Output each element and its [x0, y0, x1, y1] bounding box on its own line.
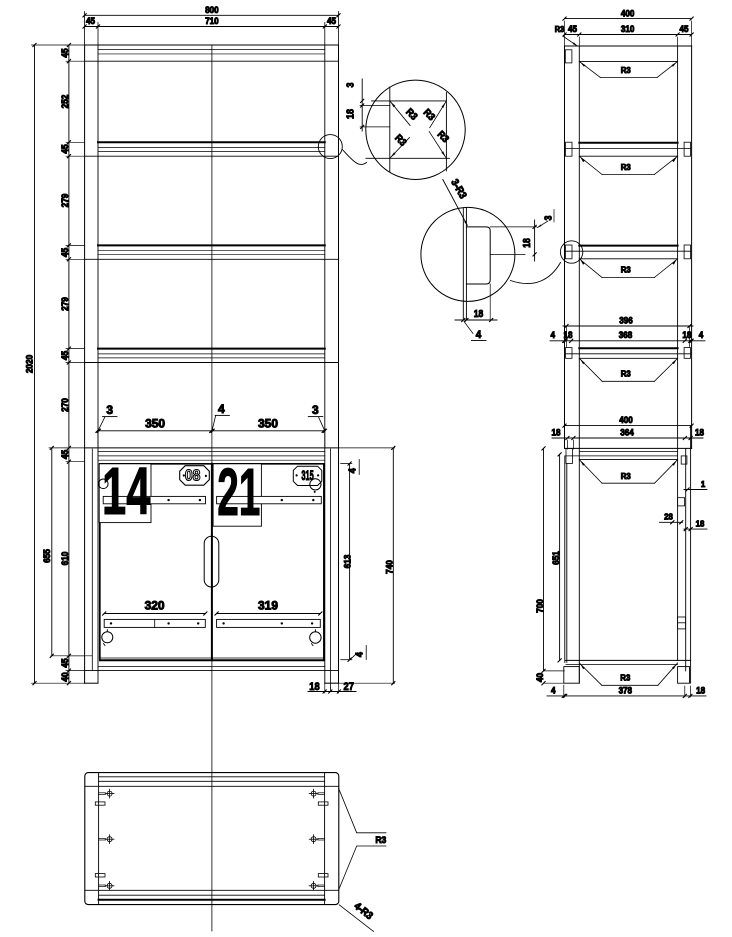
svg-text:45: 45 — [59, 248, 69, 257]
svg-text:40: 40 — [59, 672, 69, 681]
svg-text:350: 350 — [145, 416, 165, 430]
svg-text:45: 45 — [568, 24, 577, 34]
svg-text:R3: R3 — [621, 265, 631, 274]
svg-text:4-R3: 4-R3 — [352, 901, 376, 923]
svg-text:08: 08 — [185, 468, 201, 485]
svg-text:18: 18 — [696, 685, 705, 695]
svg-text:310: 310 — [621, 24, 635, 34]
svg-text:613: 613 — [342, 554, 352, 568]
svg-text:400: 400 — [619, 415, 633, 425]
svg-text:700: 700 — [535, 599, 545, 613]
svg-text:45: 45 — [680, 24, 689, 34]
svg-text:R3: R3 — [435, 129, 451, 145]
svg-text:800: 800 — [205, 5, 219, 15]
svg-text:3: 3 — [543, 215, 555, 220]
svg-text:45: 45 — [59, 48, 69, 57]
svg-text:3: 3 — [106, 403, 113, 417]
svg-text:279: 279 — [59, 297, 69, 311]
svg-text:14: 14 — [102, 454, 151, 529]
svg-text:45: 45 — [59, 658, 69, 667]
svg-text:18: 18 — [564, 330, 573, 340]
svg-text:45: 45 — [86, 16, 95, 26]
svg-text:18: 18 — [521, 238, 532, 247]
svg-text:4: 4 — [476, 330, 482, 342]
svg-text:R3: R3 — [620, 673, 630, 682]
svg-text:R3: R3 — [555, 25, 564, 34]
svg-text:21: 21 — [217, 454, 260, 530]
svg-text:R3: R3 — [375, 834, 386, 845]
svg-text:R3: R3 — [621, 163, 631, 172]
svg-text:R3: R3 — [621, 66, 631, 75]
svg-text:45: 45 — [59, 450, 69, 459]
svg-text:R3: R3 — [621, 369, 631, 378]
svg-text:4: 4 — [218, 402, 225, 416]
svg-text:45: 45 — [59, 351, 69, 360]
svg-text:3-R3: 3-R3 — [448, 177, 468, 201]
svg-text:368: 368 — [619, 330, 633, 340]
svg-text:4: 4 — [347, 468, 359, 474]
svg-text:710: 710 — [205, 16, 219, 26]
svg-text:R3: R3 — [392, 132, 408, 148]
svg-text:651: 651 — [551, 551, 561, 565]
svg-text:279: 279 — [59, 193, 69, 207]
svg-text:1: 1 — [701, 480, 706, 489]
svg-text:3: 3 — [345, 82, 357, 87]
svg-text:319: 319 — [258, 598, 278, 612]
svg-text:252: 252 — [59, 94, 69, 108]
svg-text:400: 400 — [621, 8, 635, 18]
svg-text:610: 610 — [59, 551, 69, 565]
svg-text:740: 740 — [384, 560, 394, 574]
svg-text:40: 40 — [535, 673, 545, 682]
svg-text:396: 396 — [619, 315, 633, 325]
svg-text:4: 4 — [551, 685, 556, 695]
svg-text:378: 378 — [619, 685, 633, 695]
svg-text:364: 364 — [620, 427, 634, 437]
svg-text:2020: 2020 — [24, 355, 34, 374]
svg-text:45: 45 — [327, 16, 336, 26]
svg-text:350: 350 — [258, 416, 278, 430]
svg-text:18: 18 — [696, 519, 705, 528]
svg-text:45: 45 — [59, 144, 69, 153]
svg-text:270: 270 — [59, 398, 69, 412]
svg-text:3: 3 — [312, 403, 319, 417]
svg-text:27: 27 — [344, 681, 355, 693]
svg-text:R3: R3 — [421, 107, 437, 123]
svg-text:4: 4 — [699, 330, 704, 340]
svg-text:4: 4 — [551, 330, 556, 340]
svg-text:18: 18 — [682, 330, 691, 340]
svg-text:18: 18 — [474, 308, 483, 319]
svg-text:R3: R3 — [621, 472, 631, 481]
svg-text:18: 18 — [695, 427, 704, 437]
svg-text:655: 655 — [42, 549, 52, 563]
svg-text:315: 315 — [301, 469, 313, 484]
svg-text:18: 18 — [309, 681, 320, 693]
svg-text:28: 28 — [664, 512, 673, 521]
svg-text:18: 18 — [345, 109, 357, 119]
svg-text:18: 18 — [552, 427, 561, 437]
svg-text:320: 320 — [145, 598, 165, 612]
